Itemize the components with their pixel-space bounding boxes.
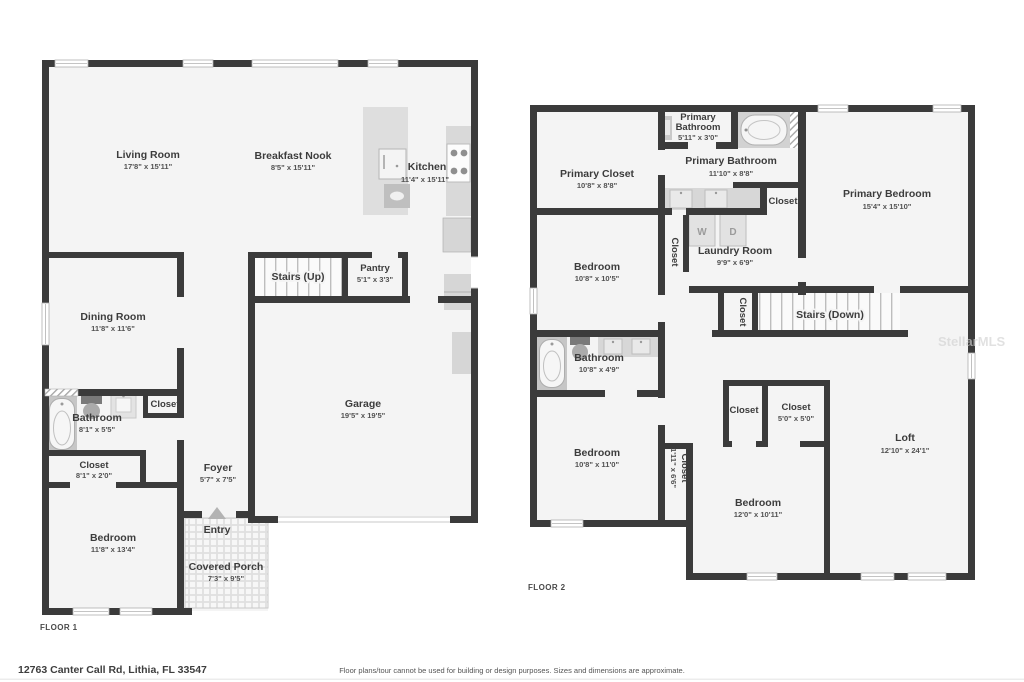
window-icon: [968, 353, 975, 379]
label-primary-bedroom: Primary Bedroom: [843, 188, 931, 200]
label-bedroom-upper: Bedroom: [574, 261, 620, 273]
label-hall-closet: Closet: [669, 237, 680, 267]
disclaimer-text: Floor plans/tour cannot be used for buil…: [339, 666, 685, 675]
window-icon: [252, 60, 338, 67]
label-living-room: Living Room: [116, 149, 180, 161]
dims-foyer: 5'7" x 7'5": [200, 475, 237, 484]
label-closet-5x5: Closet: [781, 402, 811, 413]
window-icon: [73, 608, 109, 615]
label-bathroom1: Bathroom: [72, 412, 122, 424]
window-icon: [120, 608, 152, 615]
watermark: StellarMLS: [938, 334, 1006, 349]
dims-hall-closet-narrow: 1'11" x 6'6": [669, 448, 678, 488]
svg-text:D: D: [729, 227, 736, 238]
label-kitchen: Kitchen: [408, 161, 447, 173]
water-heater-icon: [452, 332, 471, 374]
label-entry: Entry: [204, 524, 231, 536]
dims-bathroom2: 10'8" x 4'9": [579, 365, 620, 374]
label-primary-bathroom: Primary Bathroom: [685, 155, 777, 167]
dryer-icon: D: [720, 214, 746, 246]
fridge-icon: [443, 218, 471, 252]
back-door-gap: [471, 257, 478, 288]
label-loft: Loft: [895, 432, 915, 444]
window-icon: [933, 105, 961, 112]
label-closet-hall: Closet: [150, 399, 180, 410]
vanity-double-sink-icon: [662, 188, 760, 210]
garage-door-icon: [278, 516, 450, 523]
label-bedroom-middle: Bedroom: [574, 447, 620, 459]
label-foyer: Foyer: [204, 462, 233, 474]
counter-icon: [444, 274, 471, 310]
bottom-divider: [0, 679, 1024, 681]
window-icon: [55, 60, 88, 67]
bathtub-icon: [537, 337, 567, 390]
window-icon: [183, 60, 213, 67]
washer-icon: W: [689, 214, 715, 246]
label-stairs-down: Stairs (Down): [796, 309, 864, 321]
label-hall-closet-narrow: Closet: [679, 453, 690, 483]
dims-living-room: 17'8" x 15'11": [124, 162, 173, 171]
dims-closet-5x5: 5'0" x 5'0": [778, 414, 815, 423]
kitchen-island: [363, 107, 410, 215]
dims-kitchen: 11'4" x 15'11": [401, 175, 449, 184]
window-icon: [368, 60, 398, 67]
window-icon: [747, 573, 777, 580]
window-icon: [861, 573, 894, 580]
label-pantry: Pantry: [360, 263, 390, 274]
dims-loft: 12'10" x 24'1": [881, 446, 930, 455]
dims-primary-bathroom: 11'10" x 8'8": [709, 169, 754, 178]
dims-bedroom-middle: 10'8" x 11'0": [575, 460, 620, 469]
stove-icon: [446, 126, 471, 216]
label-primary-bathroom-small-2: Bathroom: [676, 122, 721, 133]
dims-covered-porch: 7'3" x 9'5": [208, 574, 245, 583]
label-garage: Garage: [345, 398, 381, 410]
dims-pantry: 5'1" x 3'3": [357, 275, 394, 284]
label-dining-room: Dining Room: [80, 311, 145, 323]
bathtub-icon: [47, 396, 77, 452]
window-icon: [530, 288, 537, 314]
privacy-window-icon: [45, 389, 78, 396]
label-bedroom1: Bedroom: [90, 532, 136, 544]
bathtub-icon: [738, 112, 790, 148]
dims-breakfast-nook: 8'5" x 15'11": [271, 163, 316, 172]
window-icon: [908, 573, 946, 580]
label-bedroom-bottom: Bedroom: [735, 497, 781, 509]
dims-primary-bathroom-small: 5'11" x 3'0": [678, 133, 718, 142]
dims-bedroom-bottom: 12'0" x 10'11": [734, 510, 783, 519]
svg-text:W: W: [697, 227, 707, 238]
dims-bedroom-upper: 10'8" x 10'5": [575, 274, 620, 283]
dims-primary-closet: 10'8" x 8'8": [577, 181, 618, 190]
floor-plan-canvas: Living Room 17'8" x 15'11" Breakfast Noo…: [0, 0, 1024, 682]
floor2-label: FLOOR 2: [528, 583, 566, 592]
label-breakfast-nook: Breakfast Nook: [254, 150, 331, 162]
window-icon: [551, 520, 583, 527]
label-covered-porch: Covered Porch: [189, 561, 264, 573]
window-icon: [42, 303, 49, 345]
address-text: 12763 Canter Call Rd, Lithia, FL 33547: [18, 664, 207, 676]
dims-laundry-room: 9'9" x 6'9": [717, 258, 754, 267]
label-bathroom2: Bathroom: [574, 352, 624, 364]
label-stairs-closet: Closet: [737, 297, 748, 327]
label-stairs-up: Stairs (Up): [271, 271, 324, 283]
dims-primary-bedroom: 15'4" x 15'10": [863, 202, 912, 211]
floor1-label: FLOOR 1: [40, 623, 78, 632]
label-closet-small: Closet: [729, 405, 759, 416]
dims-garage: 19'5" x 19'5": [341, 411, 386, 420]
dims-closet-bedroom: 8'1" x 2'0": [76, 471, 113, 480]
label-water-closet: Closet: [768, 196, 798, 207]
floor2-plan: W D: [528, 105, 975, 592]
label-closet-bedroom: Closet: [79, 460, 109, 471]
dims-dining-room: 11'8" x 11'6": [91, 324, 135, 333]
dims-bathroom1: 8'1" x 5'5": [79, 425, 116, 434]
label-primary-closet: Primary Closet: [560, 168, 635, 180]
window-icon: [818, 105, 848, 112]
dims-bedroom1: 11'8" x 13'4": [91, 545, 136, 554]
label-laundry-room: Laundry Room: [698, 245, 772, 257]
